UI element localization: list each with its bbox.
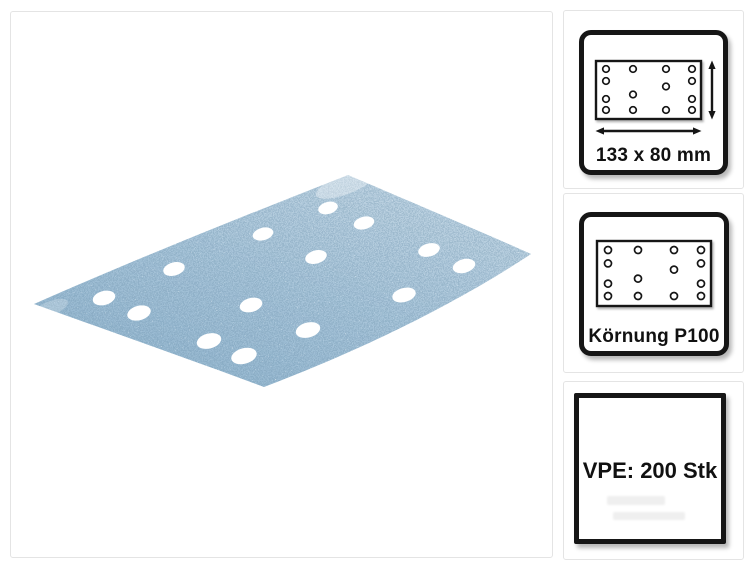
info-card-dimensions: 133 x 80 mm <box>563 10 744 189</box>
pack-size-label: VPE: 200 Stk <box>579 459 721 483</box>
grit-badge-frame: Körnung P100 <box>579 212 729 356</box>
width-arrow-icon <box>596 127 702 134</box>
sheet-dimensions-diagram-icon <box>584 49 723 141</box>
info-card-pack-size: VPE: 200 Stk <box>563 381 744 560</box>
sheet-holes-diagram-icon <box>584 231 724 316</box>
product-listing-image: 133 x 80 mm Körnung P100 VPE: 200 Stk <box>0 0 750 570</box>
faint-watermark-line <box>607 496 665 505</box>
pack-size-badge-frame: VPE: 200 Stk <box>574 393 726 544</box>
faint-watermark-line <box>613 512 685 520</box>
product-image-panel <box>10 11 553 558</box>
dimensions-badge-frame: 133 x 80 mm <box>579 30 728 175</box>
grain-dark-layer <box>34 175 531 387</box>
height-arrow-icon <box>708 61 715 120</box>
info-card-grit: Körnung P100 <box>563 193 744 373</box>
grit-label: Körnung P100 <box>584 326 724 348</box>
sanding-sheet-illustration <box>11 12 552 557</box>
dimensions-label: 133 x 80 mm <box>584 145 723 167</box>
